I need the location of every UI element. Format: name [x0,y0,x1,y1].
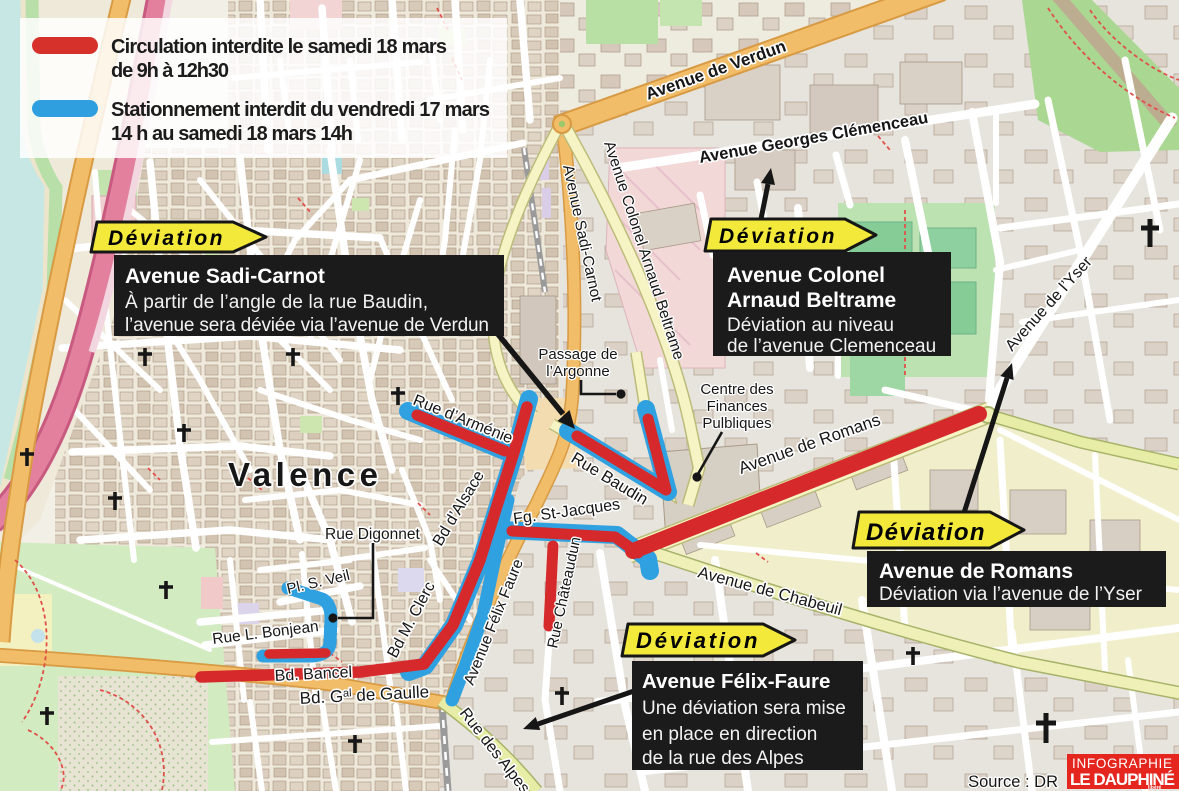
svg-text:de 9h à 12h30: de 9h à 12h30 [111,60,229,82]
svg-text:Avenue de Romans: Avenue de Romans [879,560,1073,583]
svg-text:Déviation: Déviation [866,519,986,546]
svg-text:À partir de l’angle de la rue: À partir de l’angle de la rue Baudin, [125,292,428,313]
svg-text:Source : DR: Source : DR [968,773,1058,791]
svg-text:l’Argonne: l’Argonne [546,363,609,380]
svg-text:Stationnement interdit du vend: Stationnement interdit du vendredi 17 ma… [111,99,490,121]
svg-text:de la rue des Alpes: de la rue des Alpes [642,748,804,769]
svg-text:Déviation: Déviation [719,225,836,248]
svg-text:Une déviation sera mise: Une déviation sera mise [642,698,846,719]
svg-text:Avenue Sadi-Carnot: Avenue Sadi-Carnot [125,265,325,288]
svg-text:Avenue Colonel: Avenue Colonel [727,264,885,287]
svg-text:Pulbliques: Pulbliques [702,415,771,432]
svg-text:INFOGRAPHIE: INFOGRAPHIE [1072,756,1172,771]
svg-text:en place en direction: en place en direction [642,724,817,745]
svg-text:Déviation: Déviation [108,227,224,250]
svg-text:Centre des: Centre des [700,381,773,398]
svg-text:libéré: libéré [1148,785,1162,791]
svg-text:Finances: Finances [707,398,768,415]
svg-text:Déviation: Déviation [636,628,759,653]
svg-text:de l’avenue Clemenceau: de l’avenue Clemenceau [727,336,936,357]
svg-text:Avenue Félix-Faure: Avenue Félix-Faure [642,670,830,693]
svg-text:l’avenue sera déviée via l’ave: l’avenue sera déviée via l’avenue de Ver… [125,315,489,336]
svg-text:Déviation au niveau: Déviation au niveau [727,315,894,336]
svg-text:Déviation via l’avenue de l’Ys: Déviation via l’avenue de l’Yser [879,584,1143,605]
svg-text:Passage de: Passage de [538,346,617,363]
svg-text:Rue Digonnet: Rue Digonnet [325,526,420,543]
svg-text:14 h au samedi 18 mars 14h: 14 h au samedi 18 mars 14h [111,123,353,145]
svg-text:Circulation interdite le samed: Circulation interdite le samedi 18 mars [111,36,447,58]
svg-text:Arnaud Beltrame: Arnaud Beltrame [727,289,896,312]
